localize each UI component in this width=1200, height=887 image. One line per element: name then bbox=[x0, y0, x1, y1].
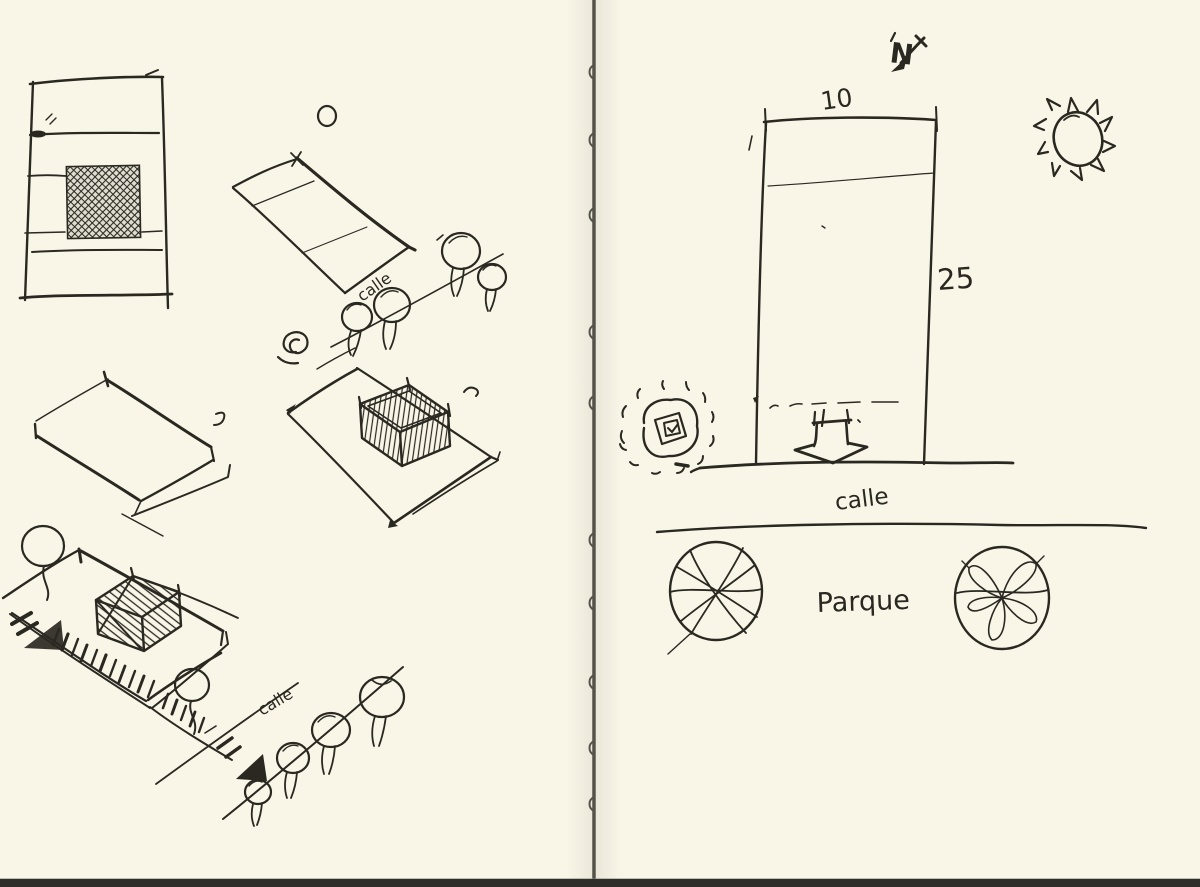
height-dimension: 25 bbox=[936, 260, 975, 296]
sketchbook-scan: calle bbox=[0, 0, 1200, 887]
scan-edge-bottom bbox=[0, 879, 1200, 887]
width-dimension: 10 bbox=[819, 83, 855, 116]
park-label: Parque bbox=[816, 585, 910, 619]
sketch-canvas: calle bbox=[0, 0, 1200, 887]
book-spine bbox=[566, 0, 622, 887]
